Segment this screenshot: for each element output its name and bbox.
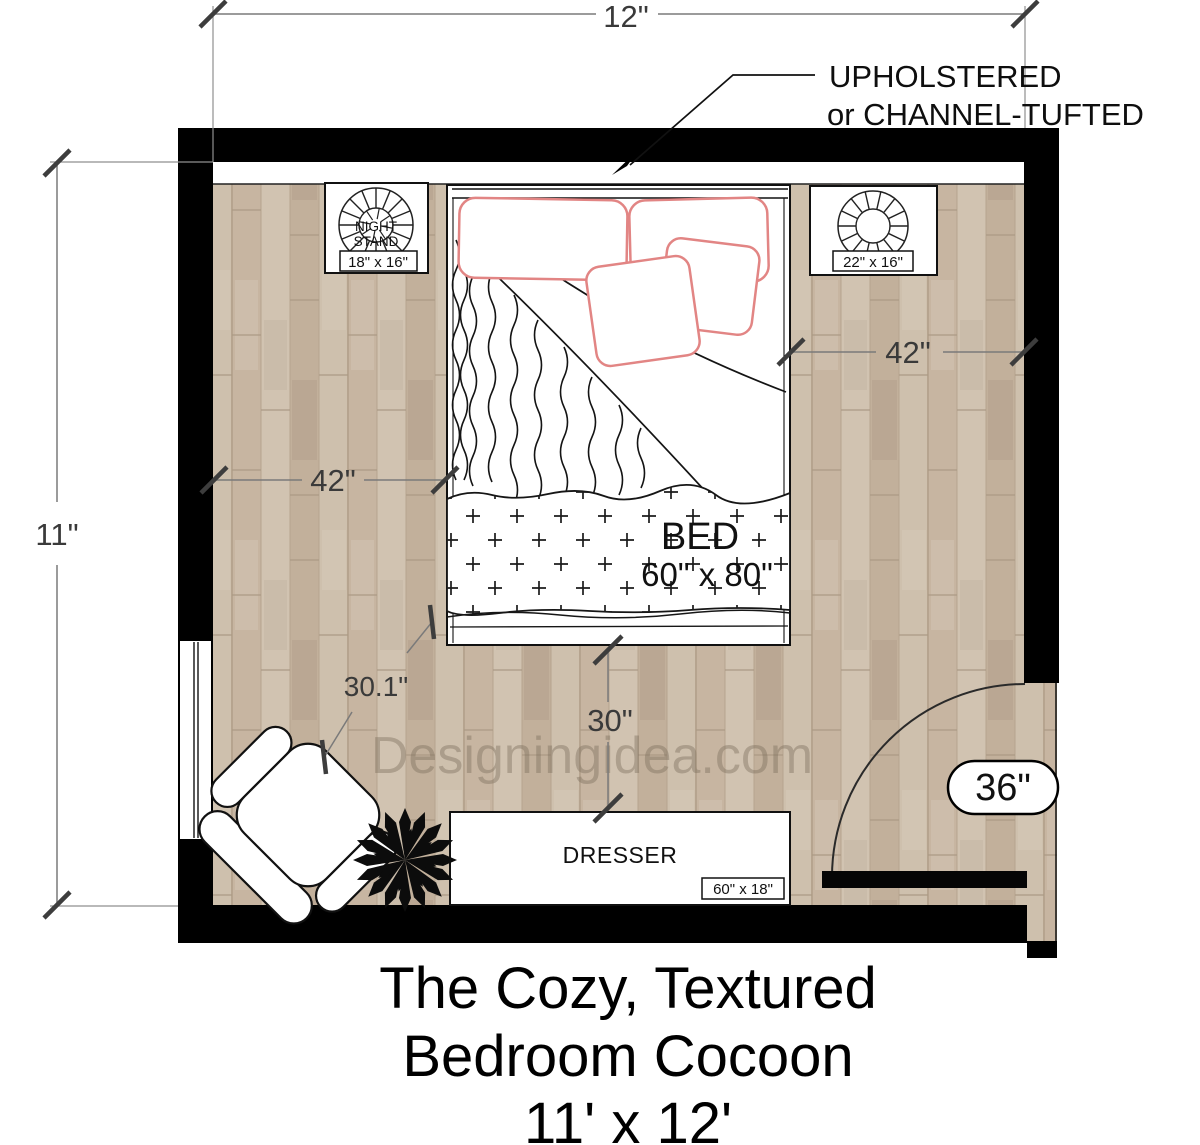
floor-plan-title: The Cozy, Textured Bedroom Cocoon 11' x … <box>379 956 877 1145</box>
title-line-3: 11' x 12' <box>524 1091 732 1145</box>
headboard-note-line-2: or CHANNEL-TUFTED <box>827 97 1144 132</box>
dresser-label: DRESSER <box>563 842 678 868</box>
bed-right-clearance-label: 42" <box>885 335 931 370</box>
door-width-pill: 36" <box>948 761 1058 814</box>
wall-corner-stub <box>1027 941 1057 958</box>
title-line-1: The Cozy, Textured <box>379 956 877 1021</box>
dresser-size-label: 60" x 18" <box>713 881 773 898</box>
room-height-label: 11" <box>35 517 78 552</box>
bed-label: BED <box>661 516 739 558</box>
nightstand-right-size-label: 22" x 16" <box>843 254 903 271</box>
door-leaf <box>822 871 1027 888</box>
title-line-2: Bedroom Cocoon <box>402 1024 853 1089</box>
dimension-room-width: 12" <box>200 0 1038 34</box>
floor-plan-page: Designingidea.com <box>0 0 1200 1145</box>
bed-size-label: 60" x 80" <box>641 556 773 593</box>
bed-left-clearance-label: 42" <box>310 463 356 498</box>
dresser-clearance-label: 30" <box>587 703 633 738</box>
door-width-label: 36" <box>975 767 1031 809</box>
window <box>179 640 212 840</box>
nightstand-left-size-label: 18" x 16" <box>348 254 408 271</box>
wall-left-upper <box>178 128 213 640</box>
nightstand-right: 22" x 16" <box>810 186 937 275</box>
plant-icon <box>353 808 457 912</box>
bed: BED 60" x 80" <box>447 185 790 645</box>
wall-right <box>1024 128 1059 683</box>
chair-clearance-label: 30.1" <box>344 671 408 702</box>
room-width-label: 12" <box>603 0 649 34</box>
nightstand-left: NIGHT STAND 18" x 16" <box>325 183 428 273</box>
dimension-room-height: 11" <box>35 150 78 918</box>
nightstand-left-label-2: STAND <box>354 234 399 249</box>
wall-top <box>178 128 1059 162</box>
nightstand-left-label-1: NIGHT <box>355 219 397 234</box>
upholstered-wall-band <box>213 162 1025 184</box>
headboard-note-line-1: UPHOLSTERED <box>829 59 1062 94</box>
floor-plan-canvas: Designingidea.com <box>0 0 1200 1145</box>
dresser: DRESSER 60" x 18" <box>450 812 790 905</box>
pillow-throw-center <box>585 254 702 368</box>
